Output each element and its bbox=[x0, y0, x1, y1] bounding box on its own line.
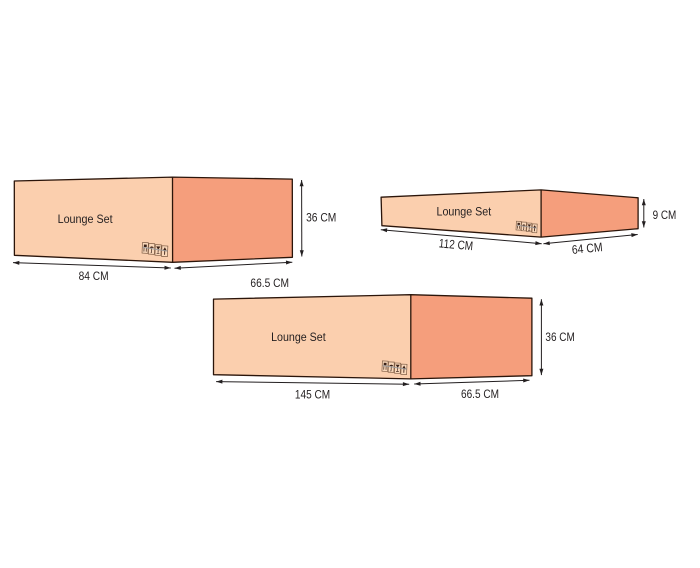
svg-text:Lounge Set: Lounge Set bbox=[58, 212, 113, 226]
svg-text:9 CM: 9 CM bbox=[653, 208, 677, 222]
svg-text:66.5 CM: 66.5 CM bbox=[250, 276, 289, 290]
svg-text:36 CM: 36 CM bbox=[545, 330, 574, 344]
svg-text:145 CM: 145 CM bbox=[295, 387, 330, 401]
svg-text:Lounge Set: Lounge Set bbox=[437, 204, 492, 218]
svg-text:66.5 CM: 66.5 CM bbox=[461, 387, 499, 401]
svg-text:36 CM: 36 CM bbox=[306, 211, 336, 225]
svg-text:112 CM: 112 CM bbox=[438, 236, 473, 253]
svg-text:Lounge Set: Lounge Set bbox=[271, 330, 326, 344]
svg-text:84 CM: 84 CM bbox=[79, 269, 109, 283]
